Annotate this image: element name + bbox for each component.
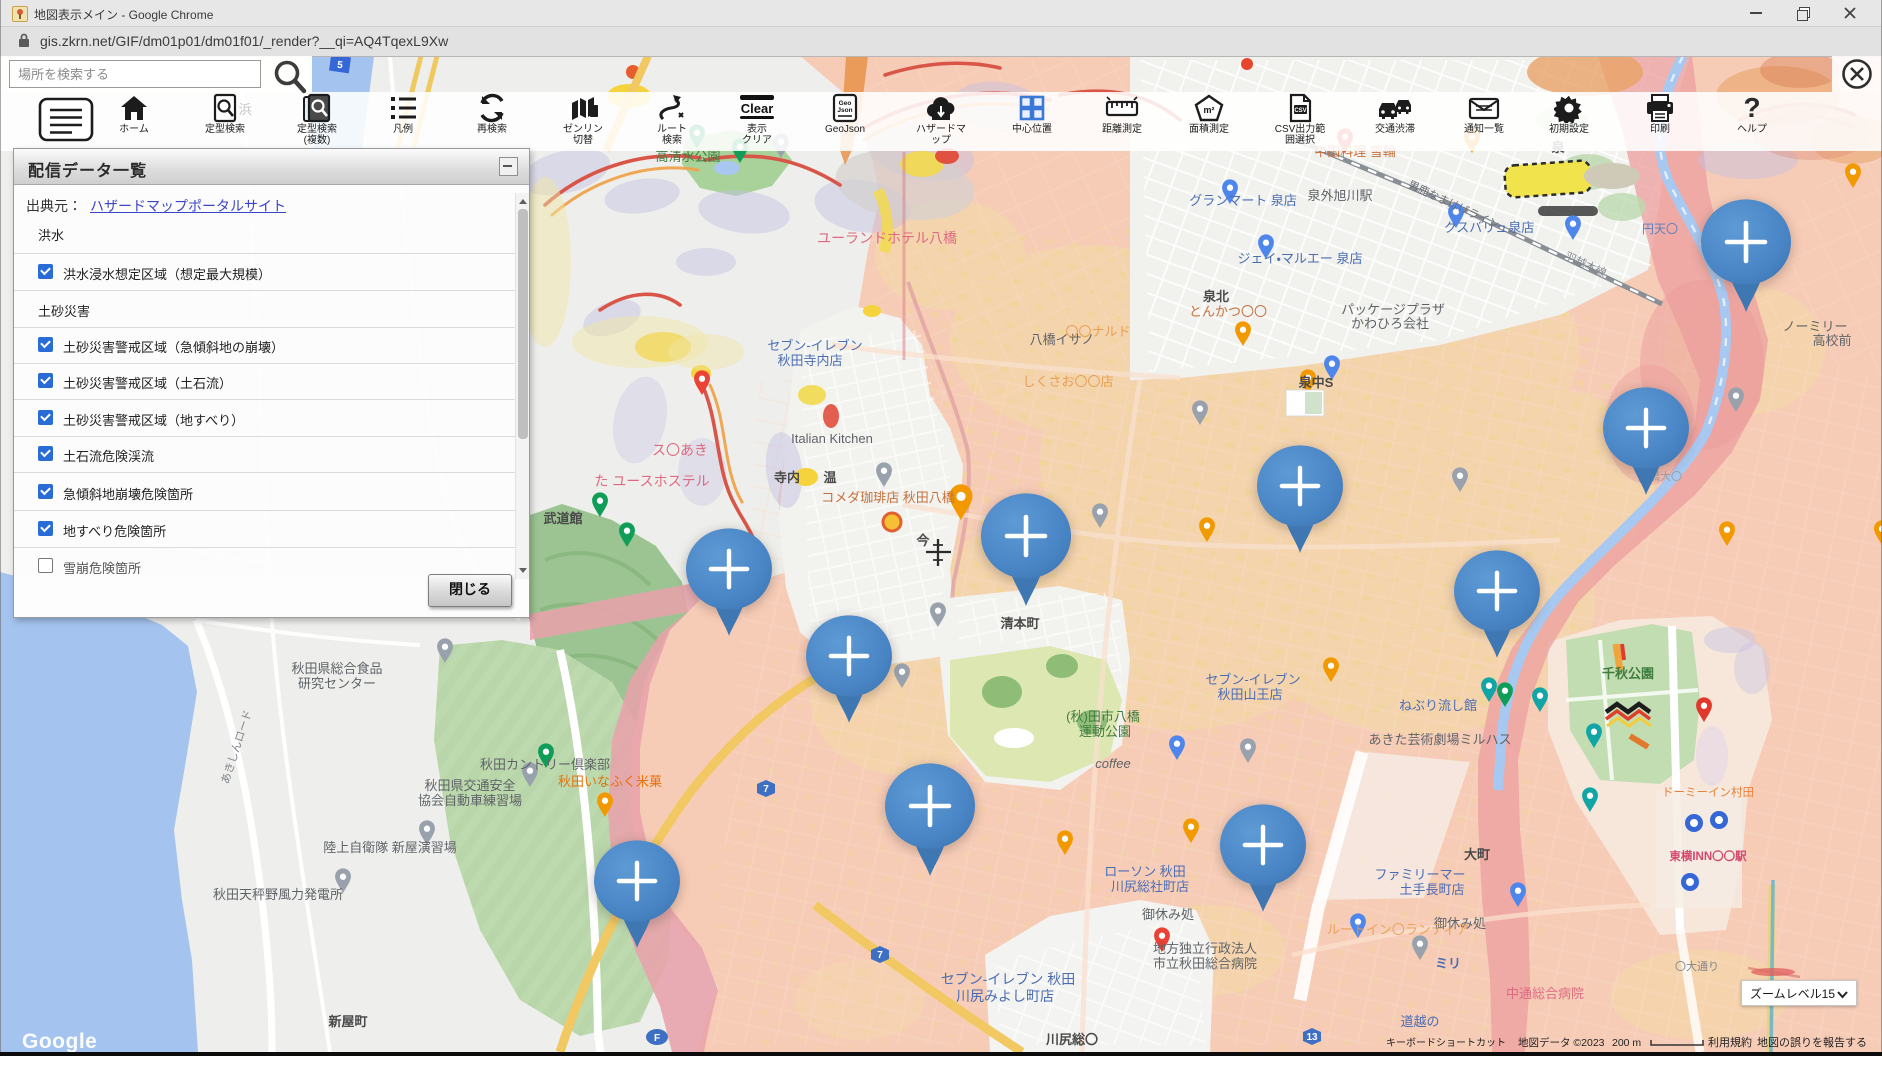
svg-text:Geo: Geo bbox=[839, 100, 852, 107]
svg-text:Clear: Clear bbox=[741, 101, 774, 116]
svg-text:新屋町: 新屋町 bbox=[327, 1014, 367, 1029]
svg-text:地方独立行政法人: 地方独立行政法人 bbox=[1153, 941, 1257, 956]
svg-text:あきた芸術劇場ミルハス: あきた芸術劇場ミルハス bbox=[1368, 732, 1511, 747]
svg-text:?: ? bbox=[1743, 93, 1760, 123]
svg-text:秋田県交通安全: 秋田県交通安全 bbox=[424, 778, 515, 793]
svg-text:ユーランドホテル八橋: ユーランドホテル八橋 bbox=[817, 230, 957, 246]
svg-text:研究センター: 研究センター bbox=[298, 676, 376, 691]
svg-text:御休み処: 御休み処 bbox=[1142, 907, 1194, 922]
svg-text:秋田カントリー倶楽部: 秋田カントリー倶楽部 bbox=[480, 757, 610, 772]
svg-text:Google: Google bbox=[22, 1030, 97, 1052]
svg-text:ミリ: ミリ bbox=[1435, 956, 1461, 971]
svg-text:地図データ ©2023: 地図データ ©2023 bbox=[1518, 1036, 1605, 1049]
svg-text:泉外旭川駅: 泉外旭川駅 bbox=[1307, 188, 1372, 203]
svg-text:m²: m² bbox=[1204, 105, 1215, 115]
svg-text:地図の誤りを報告する: 地図の誤りを報告する bbox=[1757, 1036, 1867, 1049]
svg-text:東横INN〇〇駅: 東横INN〇〇駅 bbox=[1669, 849, 1747, 863]
svg-text:今: 今 bbox=[916, 533, 930, 548]
svg-text:川尻総社町店: 川尻総社町店 bbox=[1111, 879, 1189, 894]
svg-text:高校前: 高校前 bbox=[1812, 333, 1851, 348]
svg-text:秋田県総合食品: 秋田県総合食品 bbox=[291, 661, 382, 676]
svg-text:ノーミリー: ノーミリー bbox=[1782, 319, 1847, 334]
svg-text:とんかつ〇〇: とんかつ〇〇 bbox=[1189, 304, 1267, 319]
svg-text:川尻総〇: 川尻総〇 bbox=[1045, 1032, 1098, 1047]
svg-text:陸上自衛隊 新屋演習場: 陸上自衛隊 新屋演習場 bbox=[323, 840, 457, 855]
svg-text:清本町: 清本町 bbox=[1000, 616, 1039, 631]
svg-text:土手長町店: 土手長町店 bbox=[1399, 882, 1464, 897]
svg-text:ファミリーマー: ファミリーマー bbox=[1374, 867, 1465, 882]
svg-text:セブン-イレブン: セブン-イレブン bbox=[1205, 672, 1300, 687]
svg-text:7: 7 bbox=[763, 784, 769, 795]
svg-text:coffee: coffee bbox=[1095, 756, 1130, 771]
svg-text:ローソン 秋田: ローソン 秋田 bbox=[1104, 864, 1186, 879]
svg-text:ねぶり流し館: ねぶり流し館 bbox=[1399, 698, 1477, 713]
svg-text:道越の: 道越の bbox=[1400, 1014, 1439, 1029]
svg-text:秋田山王店: 秋田山王店 bbox=[1217, 687, 1282, 702]
svg-text:中通総合病院: 中通総合病院 bbox=[1506, 986, 1584, 1001]
svg-text:200 m: 200 m bbox=[1612, 1037, 1641, 1049]
svg-text:(秋)田市八橋: (秋)田市八橋 bbox=[1066, 709, 1140, 724]
svg-text:市立秋田総合病院: 市立秋田総合病院 bbox=[1153, 956, 1257, 971]
svg-text:7: 7 bbox=[877, 950, 883, 961]
svg-text:利用規約: 利用規約 bbox=[1708, 1035, 1752, 1049]
svg-text:Json: Json bbox=[837, 107, 852, 114]
svg-text:泉北: 泉北 bbox=[1203, 289, 1229, 304]
svg-text:秋田いなふく米菓: 秋田いなふく米菓 bbox=[558, 774, 662, 789]
svg-text:川尻みよし町店: 川尻みよし町店 bbox=[956, 988, 1054, 1004]
svg-text:F: F bbox=[654, 1033, 660, 1044]
svg-text:温: 温 bbox=[823, 470, 836, 485]
svg-text:ドーミーイン村田: ドーミーイン村田 bbox=[1662, 785, 1754, 799]
svg-text:秋田天秤野風力発電所: 秋田天秤野風力発電所 bbox=[213, 887, 343, 902]
svg-text:〇大通り: 〇大通り bbox=[1675, 959, 1719, 973]
svg-text:グランマート 泉店: グランマート 泉店 bbox=[1189, 193, 1297, 208]
svg-text:円天〇: 円天〇 bbox=[1642, 222, 1678, 236]
svg-text:ジェイ・マルエー 泉店: ジェイ・マルエー 泉店 bbox=[1237, 251, 1362, 266]
svg-text:た ユースホステル: た ユースホステル bbox=[594, 473, 709, 489]
svg-text:パッケージプラザ: パッケージプラザ bbox=[1341, 302, 1445, 317]
svg-text:キーボードショートカット: キーボードショートカット bbox=[1386, 1037, 1506, 1049]
svg-text:千秋公園: 千秋公園 bbox=[1602, 666, 1654, 681]
svg-text:寺内: 寺内 bbox=[774, 470, 800, 485]
svg-text:大町: 大町 bbox=[1464, 847, 1490, 862]
svg-text:13: 13 bbox=[1306, 1032, 1318, 1043]
svg-text:武道館: 武道館 bbox=[543, 511, 582, 526]
svg-text:高清水公園: 高清水公園 bbox=[655, 149, 720, 164]
svg-text:セブン-イレブン: セブン-イレブン bbox=[767, 338, 862, 353]
svg-text:泉中S: 泉中S bbox=[1299, 375, 1334, 390]
svg-text:セブン-イレブン 秋田: セブン-イレブン 秋田 bbox=[941, 971, 1076, 987]
svg-text:しくさお〇〇店: しくさお〇〇店 bbox=[1022, 374, 1113, 389]
svg-text:Italian Kitchen: Italian Kitchen bbox=[791, 431, 873, 446]
svg-text:秋田寺内店: 秋田寺内店 bbox=[777, 353, 842, 368]
svg-text:CSV: CSV bbox=[1294, 108, 1306, 114]
svg-text:ルートイン〇ランティア: ルートイン〇ランティア bbox=[1327, 922, 1469, 937]
svg-text:コメダ珈琲店 秋田八橋: コメダ珈琲店 秋田八橋 bbox=[821, 490, 955, 505]
svg-text:かわひろ会社: かわひろ会社 bbox=[1351, 316, 1429, 331]
svg-text:協会自動車練習場: 協会自動車練習場 bbox=[418, 793, 522, 808]
svg-text:〇〇ナルド: 〇〇ナルド bbox=[1065, 324, 1130, 339]
svg-text:運動公園: 運動公園 bbox=[1079, 724, 1131, 739]
svg-text:ス〇あき: ス〇あき bbox=[652, 442, 708, 458]
